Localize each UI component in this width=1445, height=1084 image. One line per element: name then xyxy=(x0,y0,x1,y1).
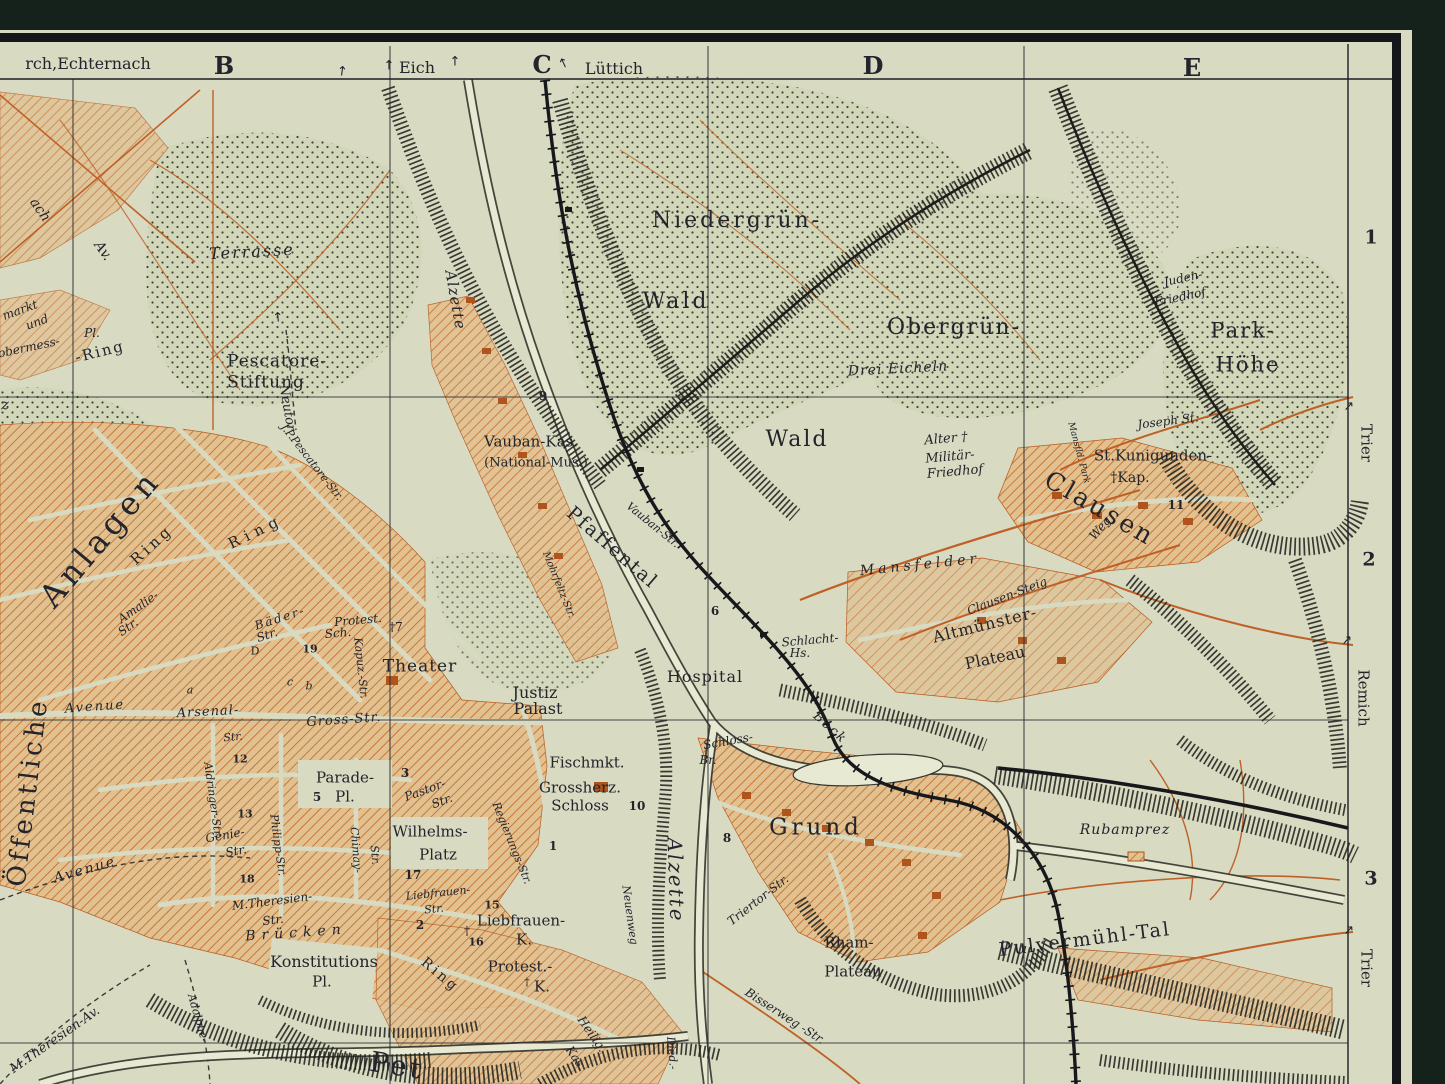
label-cross-7: †7 xyxy=(389,621,403,633)
label-national-mus: (National-Mus.) xyxy=(484,457,588,470)
label-num-6: 6 xyxy=(711,605,719,617)
label-obergruen: Obergrün- xyxy=(887,317,1021,339)
grid-col-b: B xyxy=(214,54,234,78)
label-baeder-1: Bäder- xyxy=(253,604,307,632)
label-juden: Juden- xyxy=(1163,268,1204,288)
label-pescatore-2: Stiftung xyxy=(227,375,305,392)
label-aldringer: Aldringer-Str. xyxy=(202,761,224,838)
label-kas: Kas. xyxy=(564,1044,589,1072)
label-friedhof-2: Friedhof xyxy=(926,463,983,481)
grid-row-2: 2 xyxy=(1362,551,1375,570)
label-ring-mid2: Ring xyxy=(226,512,286,552)
label-juden-friedhof: Friedhof xyxy=(1153,286,1206,309)
label-ring-mid1: Ring xyxy=(128,522,176,568)
label-konstitutions-pl: Pl. xyxy=(312,975,332,990)
label-adolphe: Adolphe- xyxy=(186,993,210,1044)
label-num-15: 15 xyxy=(484,900,499,911)
label-alzette-north: Alzette xyxy=(442,269,467,331)
label-hoehe: Höhe xyxy=(1216,355,1281,376)
label-oeffentliche: Öffentliche xyxy=(3,696,52,888)
label-num-12: 12 xyxy=(232,754,247,765)
label-parade-pl: Pl. xyxy=(335,790,355,805)
label-rham: Rham- xyxy=(824,936,873,951)
label-num-16: 16 xyxy=(468,937,483,948)
label-ach-av-1: ach xyxy=(27,196,53,225)
label-alter: Alter † xyxy=(924,431,968,448)
label-num-11: 11 xyxy=(1168,499,1185,511)
label-plateau-2: Plateau xyxy=(824,965,881,980)
exit-label-trier-upper: Trier xyxy=(1359,424,1374,462)
label-pet: Pet xyxy=(368,1048,426,1084)
label-st-kunigunden: St.Kunigunden- xyxy=(1094,449,1212,464)
direction-arrow-icon: ↑ xyxy=(272,311,284,325)
label-letter-b: b xyxy=(305,681,312,692)
label-chimay-2: Str. xyxy=(369,845,382,865)
label-protest-k-1: Protest.- xyxy=(488,960,553,975)
grid-row-1: 1 xyxy=(1364,229,1377,248)
label-mansfelder: Mansfelder xyxy=(859,552,981,579)
label-terrasse: Terrasse xyxy=(209,242,295,262)
grid-row-3: 3 xyxy=(1364,870,1377,889)
label-ring-nw: -Ring xyxy=(74,339,127,366)
label-rubamprez: Rubamprez xyxy=(1080,823,1170,837)
label-hs: Hs. xyxy=(790,647,810,659)
label-liebfrauen-k-1: Liebfrauen- xyxy=(477,914,565,929)
label-protest-sch-2: Sch. xyxy=(324,626,351,640)
direction-arrow-icon: ↑ xyxy=(556,56,571,72)
grid-col-c: C xyxy=(532,53,551,77)
direction-arrow-icon: ↑ xyxy=(1340,923,1357,940)
label-liebfrauen-str-1: Liebfrauen- xyxy=(405,884,470,902)
label-regierungs: Regierungs-Str. xyxy=(491,801,534,886)
map-canvas: rch,EchternachBEichCLüttichDE1Trier2Remi… xyxy=(0,0,1445,1084)
label-num-19: 19 xyxy=(302,644,317,655)
label-num-3: 3 xyxy=(401,767,409,779)
label-wald-2: Wald xyxy=(766,429,829,451)
exit-label-echternach: rch,Echternach xyxy=(25,56,151,72)
exit-label-trier-lower: Trier xyxy=(1359,949,1374,987)
grid-col-d: D xyxy=(863,54,884,78)
label-protest-k-2: K. xyxy=(534,980,550,995)
label-pescatore-1: Pescatore- xyxy=(227,354,327,371)
label-ach-av-2: Av. xyxy=(91,239,114,264)
label-pastor-2: Str. xyxy=(430,792,454,811)
label-grund: Grund xyxy=(769,817,863,840)
label-wald-1: Wald xyxy=(643,291,710,313)
label-letter-a: a xyxy=(187,685,194,696)
label-letter-c: c xyxy=(287,677,293,688)
grid-col-e: E xyxy=(1183,56,1201,80)
label-kap: †Kap. xyxy=(1110,471,1149,485)
label-hospital: Hospital xyxy=(667,669,743,685)
label-cross-protest: † xyxy=(524,977,530,988)
label-gross-str: Gross-Str. xyxy=(306,711,382,729)
label-num-18: 18 xyxy=(239,874,254,885)
label-parade: Parade- xyxy=(316,771,374,786)
label-ring-south: Ring xyxy=(418,955,461,995)
label-num-8: 8 xyxy=(723,832,731,844)
direction-arrow-icon: ↑ xyxy=(450,56,461,69)
label-hobermess: hobermess- xyxy=(0,335,61,361)
label-num-9: 9 xyxy=(539,390,547,402)
label-schloss-br-2: Br. xyxy=(699,754,716,766)
label-num-1: 1 xyxy=(549,840,557,852)
label-mohrfeltz-str: Mohrfeltz-Str. xyxy=(540,550,576,619)
exit-label-remich: Remich xyxy=(1356,669,1371,726)
label-wilhelms: Wilhelms- xyxy=(392,825,467,840)
label-jp-pescatore: J.P.Pescatore-Str. xyxy=(279,422,345,502)
label-bruecken: Brücken xyxy=(245,922,347,943)
label-pulvermuehl: Pulvermühl-Tal xyxy=(998,920,1172,960)
label-chimay-1: Chimay- xyxy=(349,827,364,874)
label-heilig: Heilig. xyxy=(575,1014,608,1054)
exit-label-luettich: Lüttich xyxy=(585,61,643,77)
label-amalie-1: Amalie- xyxy=(116,589,161,625)
label-schobermess-pl: Pl. xyxy=(84,327,100,339)
label-vauban-kas: Vauban-Kas. xyxy=(484,435,578,450)
label-num-5: 5 xyxy=(313,791,321,803)
label-avenue-arsenal-1: Avenue xyxy=(64,698,125,715)
direction-arrow-icon: ↑ xyxy=(336,65,349,79)
label-triertor: Triertor-Str. xyxy=(725,873,790,928)
label-liebfrauen-str-2: Str. xyxy=(424,903,445,916)
label-avenue-arsenal-2: Arsenal- xyxy=(176,704,239,720)
label-philipp: Philipp-Str. xyxy=(268,813,288,876)
label-joseph-st: Joseph St. xyxy=(1137,411,1199,430)
label-m-theresien-1: M.Theresien- xyxy=(231,890,313,912)
label-num-17: 17 xyxy=(405,869,422,881)
label-fischmkt: Fischmkt. xyxy=(549,756,624,771)
label-bisserweg: Bisserweg -Str. xyxy=(743,986,827,1046)
label-park: Park- xyxy=(1210,321,1275,342)
label-vauban-str: Vauban-Str. xyxy=(624,500,681,549)
label-kapuz: Kapuz.-Str. xyxy=(352,637,369,699)
label-drei-eicheln: Drei Eicheln xyxy=(847,359,948,378)
label-genie-2: Str. xyxy=(224,843,247,859)
label-und: und xyxy=(24,312,50,331)
map-labels-layer: rch,EchternachBEichCLüttichDE1Trier2Remi… xyxy=(0,0,1445,1084)
label-konstitutions: Konstitutions xyxy=(270,954,378,970)
label-bock: Bock xyxy=(811,710,850,747)
label-avenue-sw: Avenue xyxy=(52,854,117,885)
label-str-12: Str. xyxy=(223,731,243,744)
direction-arrow-icon: ↑ xyxy=(384,60,395,73)
label-grossherz: Grossherz. xyxy=(539,781,621,796)
label-letter-d: D xyxy=(251,646,260,657)
label-alzette-grund: Alzette xyxy=(665,837,688,923)
label-num-2: 2 xyxy=(416,919,424,931)
label-theater: Theater xyxy=(383,659,458,676)
label-z-frag: z xyxy=(1,398,9,413)
direction-arrow-icon: ↑ xyxy=(1340,399,1357,416)
direction-arrow-icon: ↑ xyxy=(1338,633,1355,650)
label-theresien-av: M.Theresien-Av. xyxy=(8,1004,102,1076)
label-palast: Palast xyxy=(514,701,563,717)
label-plateau-1: Plateau xyxy=(963,644,1026,672)
label-platz: Platz xyxy=(419,848,457,863)
label-died: Died.- xyxy=(665,1036,679,1070)
label-schloss: Schloss xyxy=(551,799,609,814)
label-liebfrauen-k-2: K. xyxy=(516,933,532,948)
exit-label-eich: Eich xyxy=(399,60,435,76)
label-num-10: 10 xyxy=(629,800,646,812)
label-niedergruen: Niedergrün- xyxy=(652,210,822,232)
label-schloss-br-1: Schloss- xyxy=(702,731,753,752)
label-neuenweg: Neuenweg xyxy=(620,885,639,946)
label-num-13: 13 xyxy=(237,809,252,820)
